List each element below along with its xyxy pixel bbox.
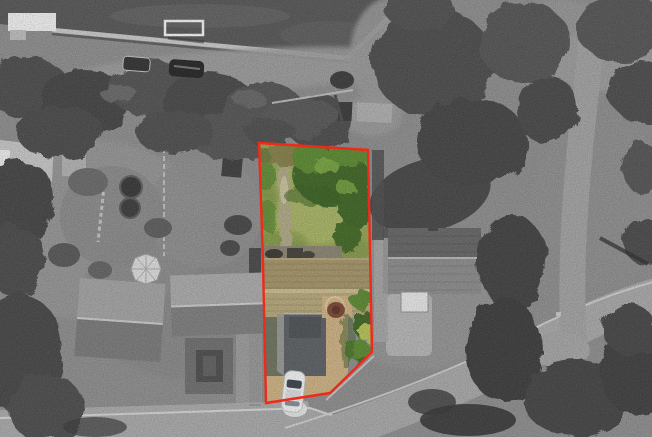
aerial-photo — [0, 0, 652, 437]
aerial-photo-canvas — [0, 0, 652, 437]
grain-light-overlay — [0, 0, 652, 437]
